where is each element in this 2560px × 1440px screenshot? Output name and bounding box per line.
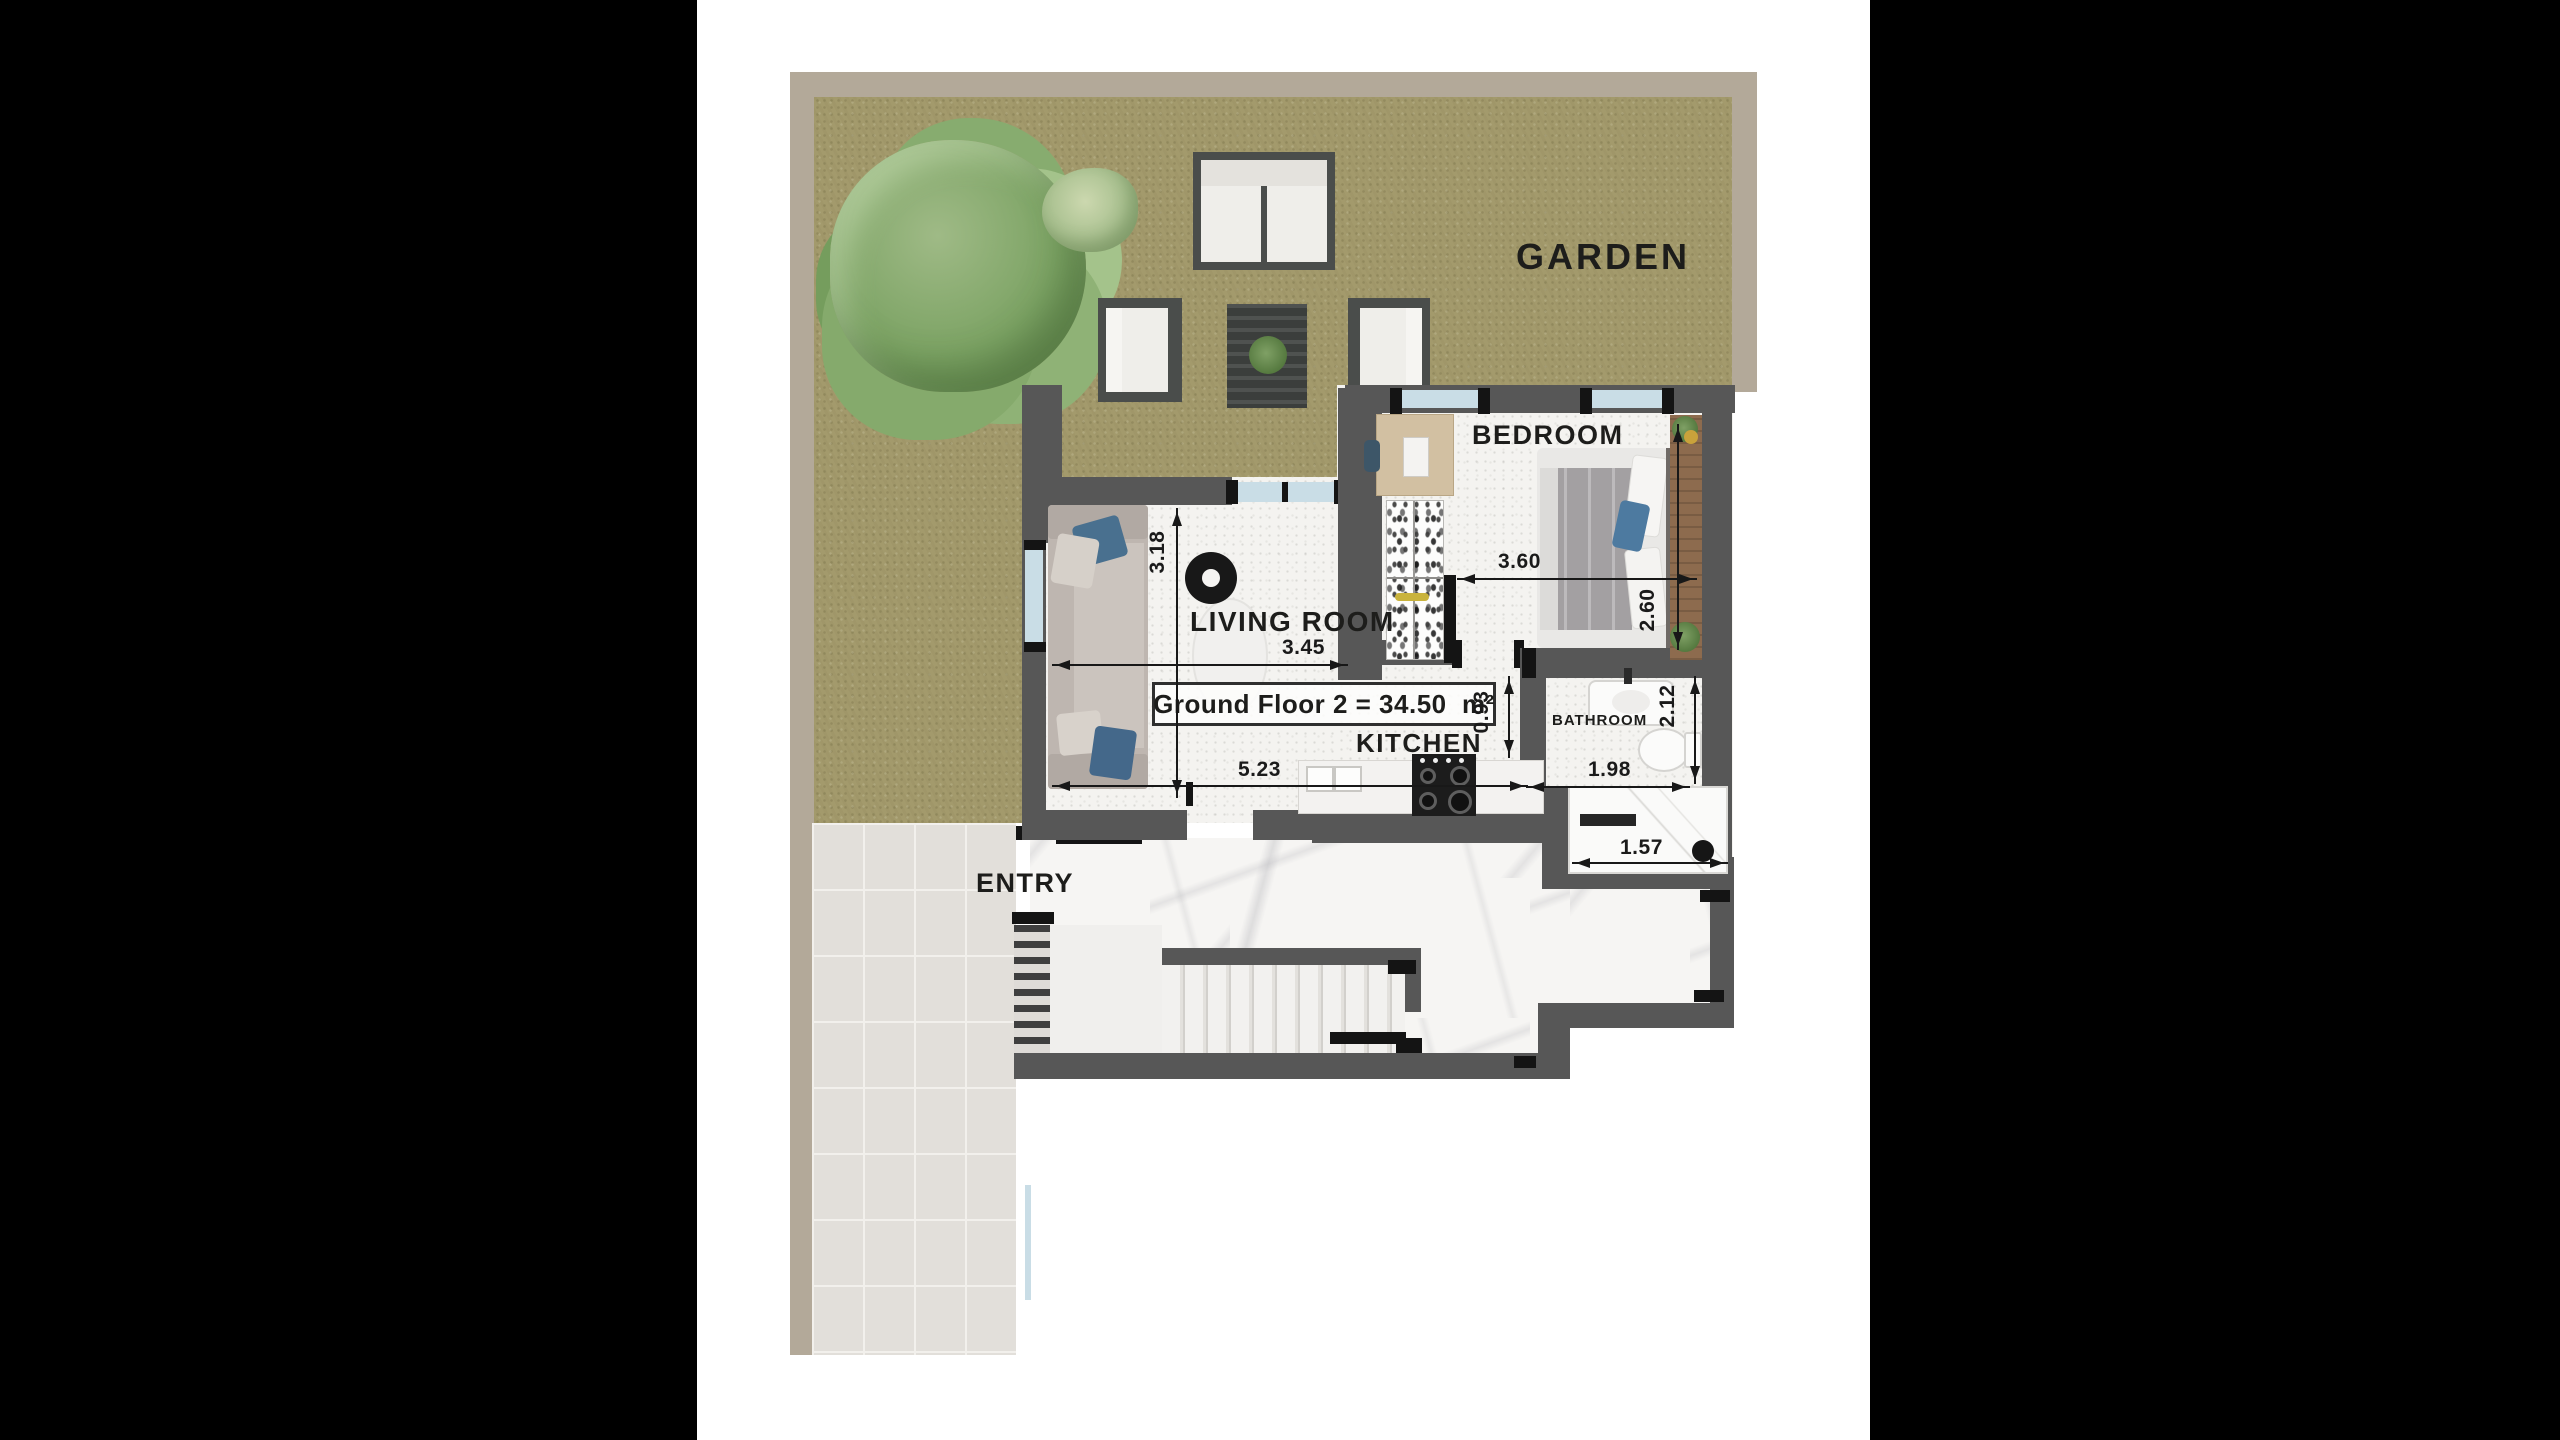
dim-living-depth: 3.18 (1146, 522, 1170, 582)
stove-burner (1419, 792, 1437, 810)
dim-line-bedroom-width (1457, 578, 1697, 580)
sink-basin (1612, 690, 1650, 714)
door-jamb (1694, 990, 1724, 1002)
dim-line-bedroom-depth (1677, 424, 1679, 650)
window-frame (1580, 388, 1592, 414)
outdoor-sofa (1193, 152, 1335, 270)
hall-bottom-wall (1014, 1053, 1570, 1079)
patio-glass-door (1025, 1185, 1031, 1300)
outdoor-sofa-backrest (1201, 160, 1327, 186)
window-frame (1024, 540, 1046, 550)
garden-tree (830, 140, 1086, 392)
floor-plan-canvas: GARDEN (0, 0, 2560, 1440)
shelf-gold-decor (1684, 430, 1698, 444)
shower (1568, 786, 1728, 874)
letterbox-left (0, 0, 697, 1440)
hall-step-wall (1538, 1003, 1570, 1079)
letterbox-right (1870, 0, 2560, 1440)
boundary-wall-left (790, 72, 814, 1355)
stair-lower-steps (1014, 925, 1050, 1058)
dim-hall-depth: 0.93 (1470, 682, 1494, 742)
dim-living-width: 3.45 (1282, 636, 1325, 660)
bedroom-label: BEDROOM (1472, 420, 1624, 451)
dim-line-hall-depth (1508, 676, 1510, 758)
stair-end-wall (1405, 948, 1421, 1012)
kitchen-sink (1306, 766, 1334, 792)
wardrobe-rod (1413, 501, 1415, 659)
dim-line-overall-width (1052, 785, 1528, 787)
window-mullion (1282, 482, 1288, 502)
living-room-top-wall (1022, 477, 1232, 505)
stair-door-jamb (1388, 960, 1416, 974)
stove-burner (1450, 766, 1470, 786)
living-room-bottom-wall (1253, 810, 1313, 840)
stove-burner (1420, 768, 1436, 784)
dim-line-shower-width (1572, 862, 1728, 864)
kitchen-sink (1334, 766, 1362, 792)
toilet-tank (1684, 732, 1702, 768)
dim-overall-width: 5.23 (1238, 758, 1281, 782)
dim-line-bathroom-width (1526, 786, 1690, 788)
stair-handrail (1330, 1032, 1406, 1044)
stair-straight-run (1162, 965, 1405, 1058)
stair-side-wall (1162, 948, 1408, 965)
living-room-left-window (1025, 548, 1043, 644)
kitchen-label: KITCHEN (1356, 728, 1482, 759)
stair-entry-nosing (1012, 912, 1054, 924)
boundary-wall-right (1732, 72, 1757, 392)
desk-laptop (1403, 437, 1429, 477)
area-label-box: Ground Floor 2 = 34.50 m² (1152, 682, 1496, 726)
wardrobe-side-frame (1444, 575, 1456, 663)
entry-label: ENTRY (976, 868, 1074, 899)
door-jamb (1514, 1056, 1536, 1068)
wardrobe-garment-yellow (1395, 593, 1429, 601)
bathroom-door-frame (1522, 648, 1536, 682)
living-room-bottom-wall (1022, 810, 1187, 840)
stair-door-jamb (1396, 1038, 1422, 1054)
bedroom-window-1 (1398, 390, 1480, 408)
sofa-pillow-blue (1089, 725, 1138, 780)
shower-bench (1580, 814, 1636, 826)
window-frame (1662, 388, 1674, 414)
table-plant (1249, 336, 1287, 374)
dim-bedroom-width: 3.60 (1498, 550, 1541, 574)
sofa-pillow-beige (1050, 533, 1100, 590)
window-frame (1390, 388, 1402, 414)
round-side-table (1185, 552, 1237, 604)
window-frame (1478, 388, 1490, 414)
garden-bush (1042, 168, 1138, 252)
bedroom-window-2 (1588, 390, 1664, 408)
area-label: Ground Floor 2 = 34.50 m² (1153, 689, 1495, 720)
door-jamb (1700, 890, 1730, 902)
boundary-wall-top (790, 72, 1757, 97)
living-room-label: LIVING ROOM (1190, 606, 1395, 638)
outdoor-coffee-table (1227, 304, 1307, 408)
wardrobe-divider (1387, 577, 1443, 579)
garden-label: GARDEN (1516, 236, 1690, 278)
window-frame (1226, 480, 1238, 504)
desk-chair (1364, 440, 1380, 472)
stair-winders (1048, 925, 1162, 1058)
dim-line-living-width (1052, 664, 1348, 666)
side-table-center (1202, 569, 1220, 587)
dim-bathroom-width: 1.98 (1588, 758, 1631, 782)
dim-line-living-depth (1176, 508, 1178, 798)
dim-bathroom-depth: 2.12 (1656, 676, 1680, 736)
bathroom-faucet (1624, 668, 1632, 684)
bathroom-label: BATHROOM (1552, 712, 1647, 729)
hall-extension-floor (1570, 887, 1716, 1005)
outdoor-armchair-left (1098, 298, 1182, 402)
dim-bedroom-depth: 2.60 (1636, 580, 1660, 640)
dim-shower-width: 1.57 (1620, 836, 1663, 860)
dim-line-bathroom-depth (1694, 676, 1696, 784)
window-frame (1024, 642, 1046, 652)
bedroom-desk (1376, 414, 1454, 496)
stove-burner (1448, 790, 1472, 814)
entry-patio (812, 823, 1016, 1355)
outdoor-armchair-back (1106, 308, 1122, 392)
outdoor-armchair-back (1406, 308, 1422, 392)
bed-sheet-fold (1540, 468, 1558, 630)
